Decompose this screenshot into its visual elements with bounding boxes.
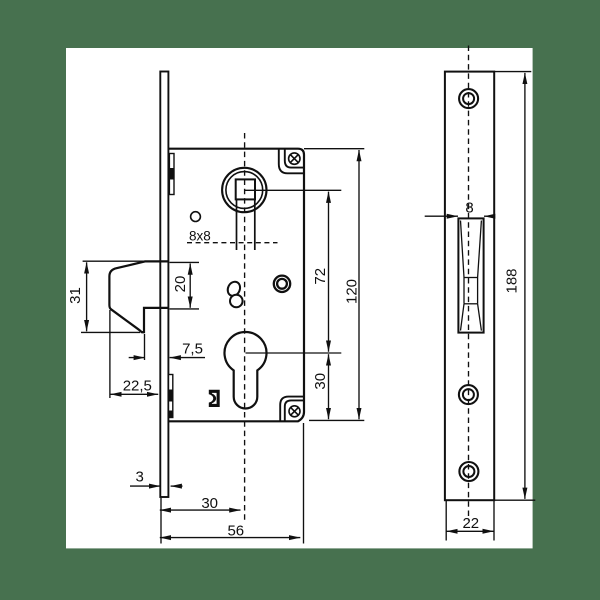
svg-text:31: 31 xyxy=(67,287,84,304)
svg-text:20: 20 xyxy=(172,276,189,293)
svg-text:30: 30 xyxy=(312,373,329,390)
svg-text:3: 3 xyxy=(136,469,144,486)
svg-text:72: 72 xyxy=(312,268,329,285)
svg-text:120: 120 xyxy=(343,279,360,304)
svg-text:22,5: 22,5 xyxy=(123,377,152,394)
svg-text:8x8: 8x8 xyxy=(189,229,211,244)
svg-text:188: 188 xyxy=(503,268,520,293)
svg-text:22: 22 xyxy=(462,515,479,532)
svg-text:8: 8 xyxy=(465,199,473,216)
svg-text:30: 30 xyxy=(201,495,218,512)
svg-text:56: 56 xyxy=(227,522,244,539)
svg-text:7,5: 7,5 xyxy=(182,341,203,358)
